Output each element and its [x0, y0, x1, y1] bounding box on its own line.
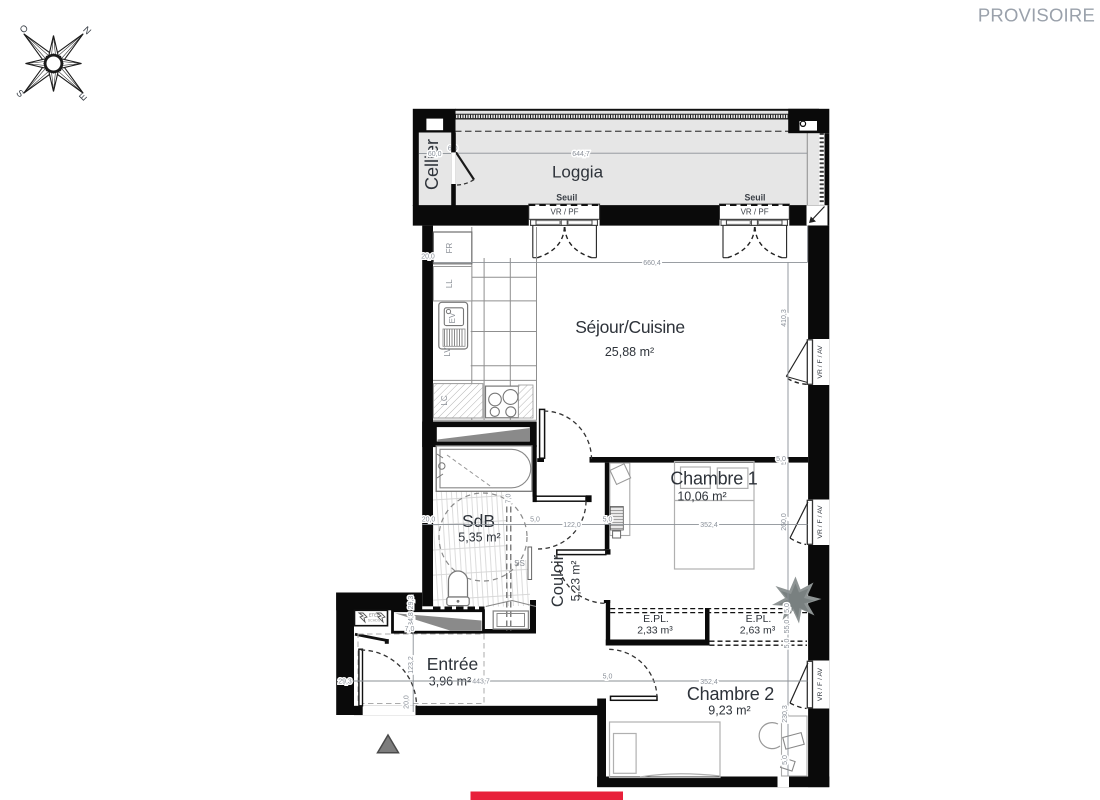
svg-text:29,3: 29,3 [338, 679, 352, 686]
svg-text:352,4: 352,4 [700, 679, 718, 686]
svg-text:SdB: SdB [462, 511, 495, 531]
svg-text:122,0: 122,0 [563, 522, 581, 529]
svg-text:VR / PF: VR / PF [741, 208, 769, 217]
svg-text:LV: LV [443, 347, 452, 357]
svg-text:LC: LC [440, 395, 449, 405]
svg-text:Entrée: Entrée [427, 654, 479, 674]
svg-text:29,3: 29,3 [408, 596, 415, 610]
svg-text:SCHDS: SCHDS [368, 619, 381, 623]
svg-text:20,0: 20,0 [404, 695, 411, 709]
svg-text:55,0: 55,0 [784, 620, 791, 634]
svg-text:2,33 m³: 2,33 m³ [637, 625, 673, 637]
svg-text:Cellier: Cellier [422, 139, 442, 190]
svg-text:20,0: 20,0 [422, 517, 436, 524]
svg-text:SS: SS [514, 559, 525, 568]
svg-text:5,0: 5,0 [784, 603, 791, 613]
svg-text:E.PL.: E.PL. [643, 613, 669, 625]
svg-text:230,3: 230,3 [782, 705, 789, 723]
svg-text:5,35 m²: 5,35 m² [458, 531, 500, 545]
svg-text:5,0: 5,0 [782, 755, 789, 765]
svg-text:10,06 m²: 10,06 m² [677, 490, 726, 504]
svg-text:3,96 m²: 3,96 m² [429, 675, 471, 689]
svg-text:5,0: 5,0 [603, 517, 613, 524]
svg-text:5,0: 5,0 [784, 639, 791, 649]
svg-text:123,2: 123,2 [408, 656, 415, 674]
svg-text:25,88 m²: 25,88 m² [605, 345, 654, 359]
svg-text:Séjour/Cuisine: Séjour/Cuisine [575, 317, 685, 337]
svg-text:VR / PF: VR / PF [550, 208, 578, 217]
svg-text:LL: LL [445, 279, 454, 288]
svg-text:5,23 m²: 5,23 m² [569, 561, 583, 602]
svg-text:260,0: 260,0 [781, 513, 788, 531]
svg-text:E.PL.: E.PL. [746, 613, 772, 625]
svg-text:5,0: 5,0 [776, 456, 786, 463]
svg-text:2,63 m³: 2,63 m³ [740, 625, 776, 637]
svg-text:20,0: 20,0 [421, 254, 435, 261]
svg-text:9,23 m²: 9,23 m² [708, 704, 750, 718]
svg-text:7,0: 7,0 [506, 494, 513, 504]
svg-text:Chambre 2: Chambre 2 [687, 684, 774, 704]
svg-text:443,7: 443,7 [472, 679, 490, 686]
svg-text:410,3: 410,3 [781, 309, 788, 327]
svg-text:60,0: 60,0 [428, 151, 442, 158]
svg-text:34,8: 34,8 [408, 612, 415, 626]
svg-text:660,4: 660,4 [643, 260, 661, 267]
svg-text:VR / F / AV: VR / F / AV [817, 505, 824, 539]
svg-text:Seuil: Seuil [556, 192, 577, 202]
svg-text:Chambre 1: Chambre 1 [670, 469, 757, 489]
svg-text:5,0: 5,0 [530, 517, 540, 524]
svg-text:VR / F / AV: VR / F / AV [817, 667, 824, 701]
svg-text:EV: EV [448, 312, 457, 323]
svg-text:644,7: 644,7 [572, 151, 590, 158]
svg-text:Seuil: Seuil [744, 192, 765, 202]
svg-text:7,0: 7,0 [405, 626, 415, 633]
svg-text:ETEL: ETEL [369, 613, 380, 618]
svg-text:PROVISOIRE: PROVISOIRE [978, 5, 1095, 26]
svg-text:FR: FR [445, 242, 454, 253]
svg-text:Loggia: Loggia [552, 163, 604, 182]
svg-text:352,4: 352,4 [700, 522, 718, 529]
svg-text:VR / F / AV: VR / F / AV [817, 345, 824, 379]
svg-text:5,0: 5,0 [603, 674, 613, 681]
